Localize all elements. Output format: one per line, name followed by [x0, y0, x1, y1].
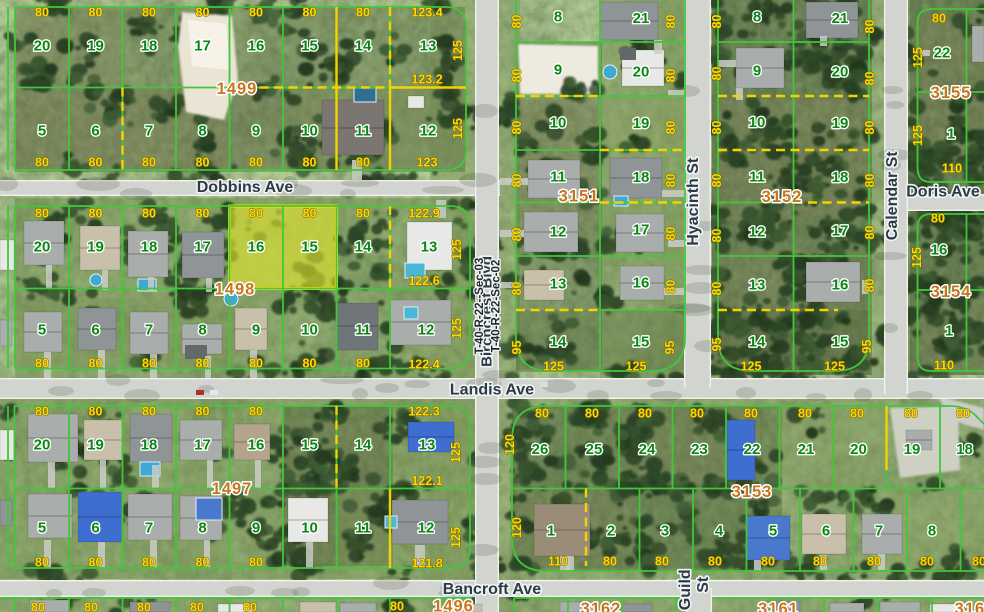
svg-text:80: 80 — [932, 12, 946, 26]
svg-text:80: 80 — [35, 6, 49, 20]
svg-text:20: 20 — [850, 441, 867, 458]
svg-text:122.3: 122.3 — [408, 405, 439, 419]
svg-text:13: 13 — [749, 276, 766, 293]
svg-text:125: 125 — [451, 118, 465, 139]
svg-text:80: 80 — [655, 555, 669, 569]
svg-text:80: 80 — [510, 282, 524, 296]
svg-text:3154: 3154 — [931, 283, 972, 301]
svg-text:80: 80 — [190, 601, 204, 612]
svg-text:80: 80 — [89, 405, 103, 419]
svg-text:15: 15 — [633, 333, 650, 350]
svg-text:80: 80 — [249, 556, 263, 570]
svg-text:6: 6 — [91, 122, 99, 139]
svg-text:5: 5 — [38, 122, 46, 139]
svg-text:18: 18 — [832, 169, 849, 186]
svg-text:3: 3 — [661, 522, 669, 539]
svg-text:95: 95 — [860, 340, 874, 354]
svg-text:15: 15 — [301, 436, 318, 453]
svg-text:80: 80 — [249, 6, 263, 20]
svg-text:17: 17 — [194, 436, 211, 453]
svg-text:80: 80 — [35, 405, 49, 419]
svg-text:21: 21 — [798, 441, 815, 458]
svg-text:1: 1 — [947, 125, 955, 142]
svg-text:80: 80 — [84, 601, 98, 612]
svg-text:80: 80 — [303, 357, 317, 371]
svg-text:80: 80 — [196, 207, 210, 221]
svg-text:80: 80 — [249, 156, 263, 170]
svg-text:80: 80 — [35, 556, 49, 570]
svg-text:80: 80 — [664, 280, 678, 294]
svg-text:80: 80 — [356, 156, 370, 170]
svg-text:15: 15 — [832, 333, 849, 350]
svg-text:80: 80 — [510, 174, 524, 188]
svg-text:121.8: 121.8 — [411, 557, 442, 571]
svg-text:80: 80 — [196, 357, 210, 371]
svg-text:80: 80 — [664, 227, 678, 241]
svg-text:6: 6 — [822, 522, 830, 539]
svg-text:12: 12 — [418, 321, 435, 338]
svg-text:125: 125 — [911, 125, 925, 146]
svg-text:8: 8 — [753, 8, 761, 25]
svg-text:T-40-R-22--Sec-03: T-40-R-22--Sec-03 — [474, 258, 486, 355]
svg-text:15: 15 — [301, 238, 318, 255]
svg-text:18: 18 — [141, 238, 158, 255]
svg-text:Guild: Guild — [677, 569, 694, 610]
svg-text:125: 125 — [450, 318, 464, 339]
svg-text:80: 80 — [142, 357, 156, 371]
svg-text:14: 14 — [355, 436, 372, 453]
svg-text:80: 80 — [356, 357, 370, 371]
svg-text:10: 10 — [301, 321, 318, 338]
svg-text:125: 125 — [741, 360, 762, 374]
svg-text:125: 125 — [450, 239, 464, 260]
svg-text:8: 8 — [198, 519, 206, 536]
svg-text:80: 80 — [710, 229, 724, 243]
svg-text:19: 19 — [87, 436, 104, 453]
svg-text:80: 80 — [585, 407, 599, 421]
svg-text:80: 80 — [535, 407, 549, 421]
svg-text:80: 80 — [89, 207, 103, 221]
svg-text:9: 9 — [753, 62, 761, 79]
svg-text:80: 80 — [137, 601, 151, 612]
svg-text:18: 18 — [956, 441, 973, 458]
svg-text:5: 5 — [38, 321, 46, 338]
svg-text:110: 110 — [548, 555, 568, 569]
svg-text:80: 80 — [196, 6, 210, 20]
svg-text:80: 80 — [356, 207, 370, 221]
svg-text:80: 80 — [863, 279, 877, 293]
svg-text:80: 80 — [510, 15, 524, 29]
svg-text:80: 80 — [956, 407, 970, 421]
svg-text:Calendar St: Calendar St — [884, 151, 901, 241]
svg-text:3162: 3162 — [581, 600, 622, 612]
svg-text:1496: 1496 — [433, 597, 474, 612]
svg-text:20: 20 — [34, 436, 51, 453]
svg-text:7: 7 — [145, 321, 153, 338]
svg-text:80: 80 — [603, 555, 617, 569]
svg-text:20: 20 — [633, 63, 650, 80]
svg-text:22: 22 — [934, 44, 951, 61]
svg-text:24: 24 — [639, 441, 656, 458]
svg-text:80: 80 — [867, 555, 881, 569]
svg-text:St: St — [695, 576, 712, 593]
svg-text:8: 8 — [554, 8, 562, 25]
svg-text:5: 5 — [769, 522, 777, 539]
svg-text:80: 80 — [303, 156, 317, 170]
svg-text:125: 125 — [451, 40, 465, 61]
svg-text:80: 80 — [196, 156, 210, 170]
svg-text:80: 80 — [761, 555, 775, 569]
svg-text:80: 80 — [710, 67, 724, 81]
svg-text:22: 22 — [744, 441, 761, 458]
svg-text:80: 80 — [710, 15, 724, 29]
svg-text:80: 80 — [89, 6, 103, 20]
svg-text:80: 80 — [142, 6, 156, 20]
svg-text:80: 80 — [196, 405, 210, 419]
svg-text:1497: 1497 — [212, 480, 253, 498]
svg-text:25: 25 — [586, 441, 603, 458]
svg-text:80: 80 — [142, 207, 156, 221]
svg-text:19: 19 — [87, 238, 104, 255]
svg-text:17: 17 — [633, 221, 650, 238]
svg-text:123.4: 123.4 — [411, 6, 442, 20]
svg-text:Doris Ave: Doris Ave — [906, 183, 980, 200]
svg-text:80: 80 — [708, 555, 722, 569]
svg-text:80: 80 — [664, 15, 678, 29]
svg-text:80: 80 — [243, 601, 257, 612]
svg-text:13: 13 — [550, 275, 567, 292]
svg-text:80: 80 — [863, 20, 877, 34]
svg-text:11: 11 — [550, 168, 566, 185]
svg-text:95: 95 — [663, 341, 677, 355]
svg-text:80: 80 — [31, 601, 45, 612]
svg-text:80: 80 — [89, 357, 103, 371]
svg-text:19: 19 — [87, 37, 104, 54]
svg-text:123: 123 — [417, 156, 438, 170]
svg-text:20: 20 — [832, 63, 849, 80]
svg-text:80: 80 — [710, 174, 724, 188]
svg-text:Hyacinth St: Hyacinth St — [685, 157, 702, 246]
svg-text:80: 80 — [744, 407, 758, 421]
svg-text:80: 80 — [690, 407, 704, 421]
svg-text:13: 13 — [421, 238, 438, 255]
svg-text:20: 20 — [34, 37, 51, 54]
svg-text:1: 1 — [945, 322, 953, 339]
svg-text:80: 80 — [664, 121, 678, 135]
svg-text:14: 14 — [550, 333, 567, 350]
svg-text:Landis Ave: Landis Ave — [450, 381, 534, 398]
svg-text:13: 13 — [419, 436, 436, 453]
svg-text:80: 80 — [249, 405, 263, 419]
svg-text:80: 80 — [35, 207, 49, 221]
svg-text:110: 110 — [934, 359, 954, 373]
svg-text:122.9: 122.9 — [408, 207, 439, 221]
svg-text:80: 80 — [710, 282, 724, 296]
svg-text:3161: 3161 — [758, 600, 799, 612]
svg-text:80: 80 — [863, 174, 877, 188]
svg-text:80: 80 — [710, 121, 724, 135]
svg-text:19: 19 — [832, 115, 849, 132]
svg-text:80: 80 — [510, 121, 524, 135]
svg-text:13: 13 — [420, 37, 437, 54]
svg-text:6: 6 — [91, 321, 99, 338]
svg-text:80: 80 — [510, 228, 524, 242]
svg-text:14: 14 — [355, 238, 372, 255]
svg-text:80: 80 — [931, 212, 945, 226]
svg-text:125: 125 — [911, 47, 925, 68]
svg-text:80: 80 — [638, 407, 652, 421]
svg-text:6: 6 — [91, 519, 99, 536]
svg-text:80: 80 — [972, 555, 984, 569]
svg-text:14: 14 — [749, 333, 766, 350]
svg-text:21: 21 — [633, 10, 650, 27]
svg-text:80: 80 — [863, 121, 877, 135]
svg-text:9: 9 — [252, 519, 260, 536]
svg-text:10: 10 — [301, 519, 318, 536]
svg-text:23: 23 — [691, 441, 708, 458]
svg-text:2: 2 — [607, 522, 615, 539]
svg-text:80: 80 — [35, 156, 49, 170]
svg-text:8: 8 — [928, 522, 936, 539]
svg-text:80: 80 — [390, 600, 404, 612]
svg-text:3155: 3155 — [931, 84, 972, 102]
svg-text:21: 21 — [832, 10, 849, 27]
svg-text:9: 9 — [554, 61, 562, 78]
svg-text:17: 17 — [832, 222, 849, 239]
svg-text:12: 12 — [749, 223, 766, 240]
svg-text:125: 125 — [449, 527, 463, 548]
svg-text:80: 80 — [920, 555, 934, 569]
svg-text:80: 80 — [863, 226, 877, 240]
svg-text:80: 80 — [850, 407, 864, 421]
svg-text:4: 4 — [715, 522, 724, 539]
svg-text:7: 7 — [145, 122, 153, 139]
svg-text:122.4: 122.4 — [408, 358, 439, 372]
svg-text:26: 26 — [532, 441, 549, 458]
svg-text:19: 19 — [633, 115, 650, 132]
svg-text:16: 16 — [931, 241, 948, 258]
svg-text:80: 80 — [249, 207, 263, 221]
svg-text:7: 7 — [145, 519, 153, 536]
svg-text:125: 125 — [626, 360, 647, 374]
svg-text:3151: 3151 — [559, 187, 600, 205]
svg-text:122.6: 122.6 — [408, 274, 439, 288]
svg-text:80: 80 — [303, 6, 317, 20]
svg-text:1: 1 — [547, 522, 555, 539]
svg-text:16: 16 — [633, 274, 650, 291]
svg-text:80: 80 — [813, 555, 827, 569]
svg-text:80: 80 — [35, 357, 49, 371]
svg-text:11: 11 — [355, 122, 371, 139]
svg-text:3152: 3152 — [762, 188, 803, 206]
svg-text:125: 125 — [824, 360, 845, 374]
svg-text:80: 80 — [863, 72, 877, 86]
svg-text:Dobbins Ave: Dobbins Ave — [197, 179, 294, 196]
svg-text:80: 80 — [356, 6, 370, 20]
svg-text:125: 125 — [449, 442, 463, 463]
svg-text:9: 9 — [252, 122, 260, 139]
svg-text:15: 15 — [301, 37, 318, 54]
svg-text:80: 80 — [142, 405, 156, 419]
svg-text:12: 12 — [418, 519, 435, 536]
svg-text:125: 125 — [910, 247, 924, 268]
svg-text:8: 8 — [198, 122, 206, 139]
svg-text:16: 16 — [248, 238, 265, 255]
svg-text:123.2: 123.2 — [411, 73, 442, 87]
svg-text:12: 12 — [420, 122, 437, 139]
svg-text:17: 17 — [194, 37, 211, 54]
svg-text:Bancroft Ave: Bancroft Ave — [443, 581, 541, 598]
svg-text:125: 125 — [543, 360, 564, 374]
svg-text:10: 10 — [550, 114, 567, 131]
svg-text:95: 95 — [710, 338, 724, 352]
svg-text:9: 9 — [252, 321, 260, 338]
svg-text:18: 18 — [141, 436, 158, 453]
svg-text:80: 80 — [303, 207, 317, 221]
svg-text:16: 16 — [248, 37, 265, 54]
svg-text:80: 80 — [142, 156, 156, 170]
svg-text:80: 80 — [196, 556, 210, 570]
svg-text:3160: 3160 — [955, 600, 984, 612]
svg-text:11: 11 — [749, 168, 765, 185]
svg-text:16: 16 — [832, 276, 849, 293]
svg-text:14: 14 — [355, 37, 372, 54]
svg-text:19: 19 — [904, 441, 921, 458]
svg-text:3153: 3153 — [732, 483, 773, 501]
svg-text:80: 80 — [142, 556, 156, 570]
svg-text:20: 20 — [34, 238, 51, 255]
svg-text:7: 7 — [875, 522, 883, 539]
svg-text:95: 95 — [510, 341, 524, 355]
svg-text:18: 18 — [633, 169, 650, 186]
svg-text:10: 10 — [749, 114, 766, 131]
svg-text:120: 120 — [503, 434, 517, 455]
svg-text:80: 80 — [664, 69, 678, 83]
svg-text:12: 12 — [550, 223, 567, 240]
svg-text:120: 120 — [510, 517, 524, 538]
svg-text:80: 80 — [249, 357, 263, 371]
svg-text:11: 11 — [355, 321, 371, 338]
svg-text:16: 16 — [248, 436, 265, 453]
svg-text:80: 80 — [664, 174, 678, 188]
svg-text:8: 8 — [198, 321, 206, 338]
svg-text:80: 80 — [89, 556, 103, 570]
svg-text:T-40-R-22-Sec-02: T-40-R-22-Sec-02 — [491, 260, 503, 353]
svg-text:1499: 1499 — [217, 80, 258, 98]
svg-text:17: 17 — [194, 238, 211, 255]
svg-text:18: 18 — [141, 37, 158, 54]
svg-text:1498: 1498 — [215, 280, 256, 298]
svg-text:80: 80 — [510, 69, 524, 83]
svg-text:80: 80 — [89, 156, 103, 170]
svg-text:80: 80 — [904, 407, 918, 421]
svg-text:122.1: 122.1 — [411, 474, 442, 488]
svg-text:11: 11 — [355, 519, 371, 536]
svg-text:10: 10 — [301, 122, 318, 139]
svg-text:5: 5 — [38, 519, 46, 536]
svg-text:80: 80 — [798, 407, 812, 421]
svg-text:110: 110 — [942, 162, 962, 176]
